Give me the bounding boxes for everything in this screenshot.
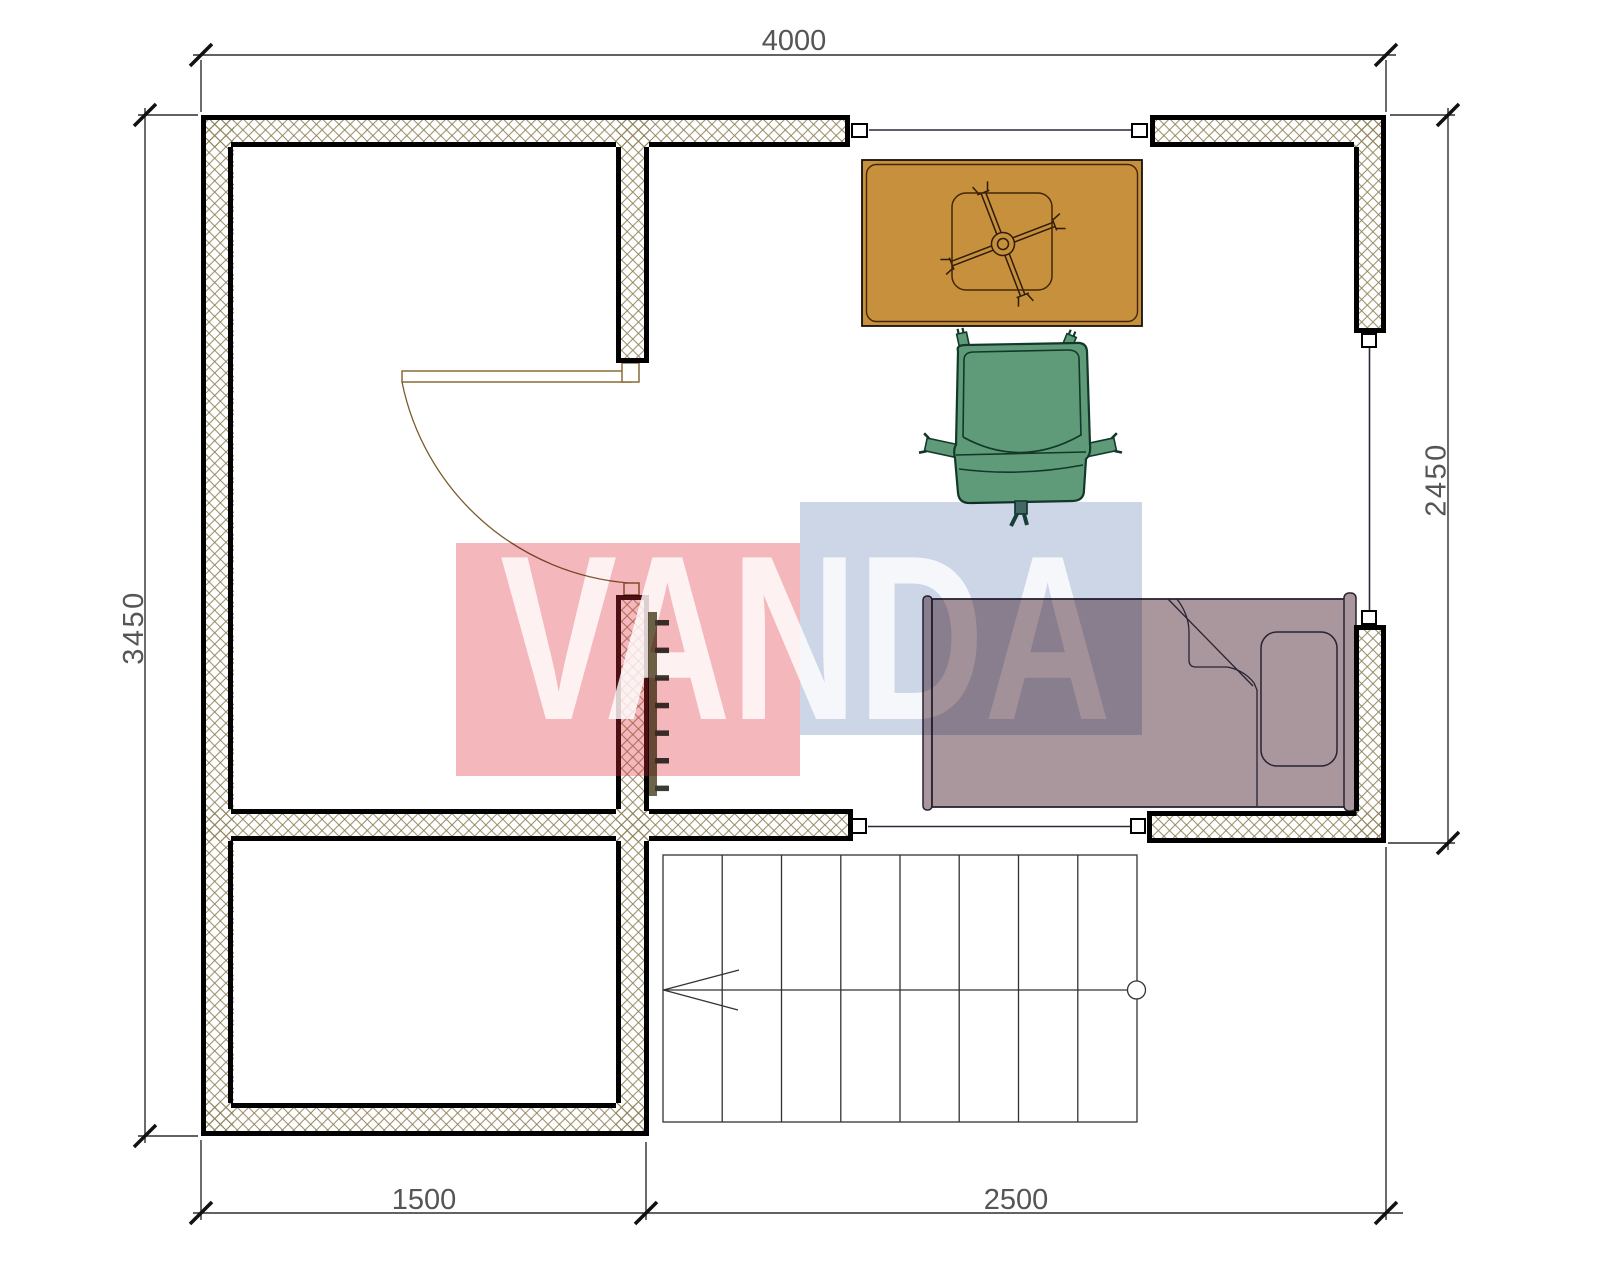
svg-text:4000: 4000 <box>762 25 827 57</box>
svg-text:2500: 2500 <box>984 1184 1049 1216</box>
svg-text:2450: 2450 <box>1421 442 1453 517</box>
svg-text:3450: 3450 <box>118 590 150 665</box>
svg-text:1500: 1500 <box>392 1184 457 1216</box>
